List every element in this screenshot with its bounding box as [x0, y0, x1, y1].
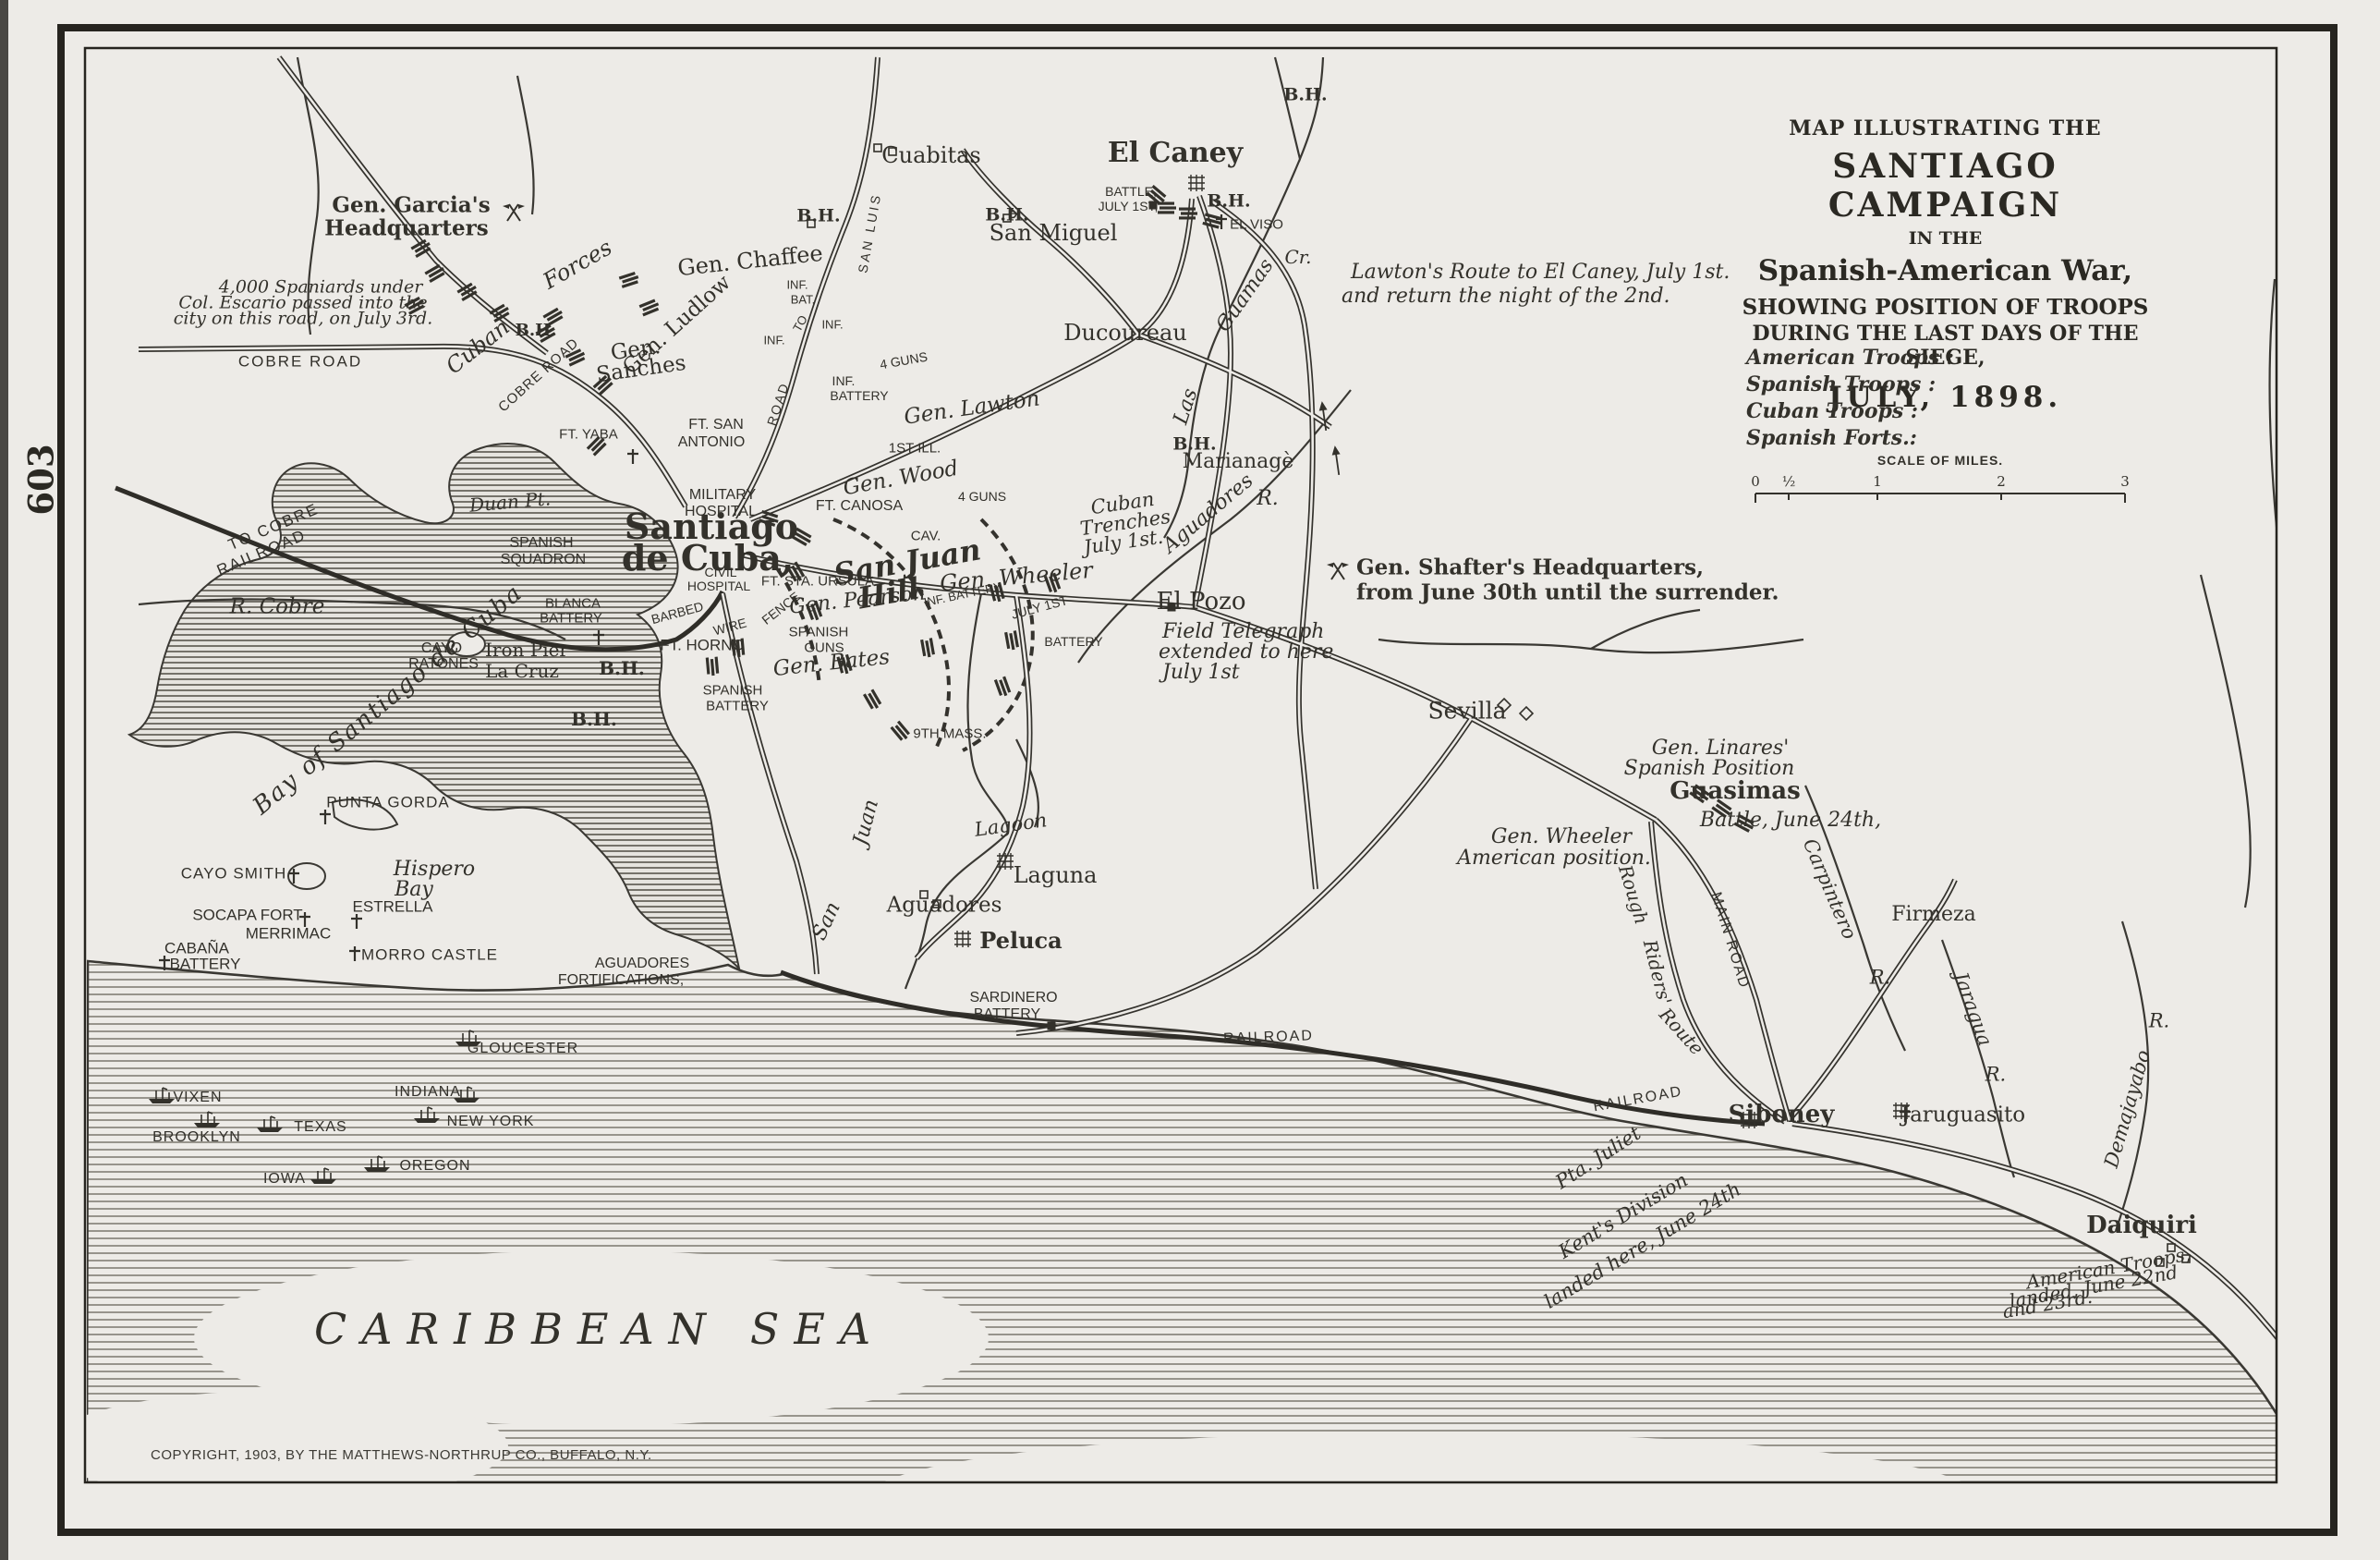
- map-label: FT. HORNO: [660, 638, 745, 653]
- map-label: INDIANA: [395, 1085, 461, 1100]
- map-label: Route: [1657, 1005, 1707, 1058]
- map-label: BATTERY: [974, 1007, 1040, 1022]
- map-label: INF.: [832, 374, 856, 387]
- map-label: Gen. Chaffee: [676, 242, 823, 279]
- map-label: Gen. Bates: [772, 647, 891, 680]
- map-label: BATTERY: [1044, 635, 1102, 648]
- map-label: R. Cobre: [230, 597, 325, 618]
- map-label: 4 GUNS: [879, 350, 929, 372]
- map-label: FT. CANOSA: [816, 499, 903, 514]
- scale-bar: 0½123: [1746, 468, 2134, 508]
- map-label: Sanches: [595, 353, 687, 386]
- scale-tick-label: 2: [1997, 473, 2006, 490]
- map-label: Aguadores: [1160, 470, 1257, 557]
- map-label: MILITARY: [689, 488, 756, 503]
- map-label: Rough: [1616, 863, 1651, 927]
- map-label: city on this road, on July 3rd.: [174, 311, 432, 328]
- map-label: Guasimas: [1670, 779, 1800, 803]
- map-label: extended to here: [1159, 642, 1333, 663]
- map-label: CAV.: [911, 530, 941, 543]
- legend-item: Spanish Forts.:: [1746, 424, 2143, 451]
- map-label: BARBED: [650, 600, 704, 626]
- map-label: Battle, June 24th,: [1700, 810, 1881, 831]
- map-label: El Caney: [1108, 140, 1243, 167]
- map-label: Lawton's Route to El Caney, July 1st.: [1351, 262, 1730, 283]
- map-label: INF.: [763, 335, 784, 347]
- map-label: Gen. Garcia's: [332, 195, 490, 216]
- map-label: BLANCA: [545, 597, 601, 611]
- map-label: from June 30th until the surrender.: [1356, 582, 1779, 603]
- map-label: Field Telegraph: [1162, 622, 1324, 642]
- map-label: CARIBBEAN: [314, 1308, 721, 1350]
- scale-tick-label: ½: [1782, 473, 1796, 490]
- map-label: EL VISO: [1230, 218, 1283, 232]
- map-label: SAN LUIS: [856, 192, 882, 274]
- map-label: BATTERY: [170, 957, 241, 972]
- title-line: IN THE: [1726, 228, 2165, 249]
- map-label: BATTERY: [540, 612, 602, 626]
- map-label: Aguadores: [887, 896, 1002, 917]
- map-label: R.: [1985, 1066, 2007, 1085]
- map-label: Riders': [1641, 938, 1675, 1006]
- map-label: San: [809, 899, 844, 944]
- map-label: ROAD: [765, 381, 791, 427]
- map-label: JULY 1ST,: [1099, 200, 1159, 213]
- map-label: B.H.: [1207, 193, 1250, 211]
- map-label: OREGON: [399, 1159, 470, 1174]
- map-label: R.: [1257, 489, 1279, 509]
- legend-item-label: Cuban Troops :: [1746, 399, 1918, 423]
- map-label: Demajayabo: [2102, 1048, 2154, 1170]
- map-label: Laguna: [1014, 864, 1098, 886]
- map-label: Jaruguasito: [1901, 1105, 2025, 1127]
- map-label: Cuabitas: [881, 144, 980, 166]
- map-label: CABAÑA: [164, 941, 229, 957]
- map-label: JULY 1ST: [1010, 593, 1069, 621]
- map-label: SQUADRON: [501, 553, 586, 567]
- map-label: COBRE ROAD: [496, 335, 581, 414]
- scale-title: SCALE OF MILES.: [1746, 453, 2134, 468]
- map-label: Headquarters: [324, 218, 489, 239]
- map-label: Spanish Position: [1624, 759, 1795, 779]
- map-label: Siboney: [1729, 1103, 1835, 1127]
- map-label: Lagoon: [974, 810, 1049, 840]
- map-label: VIXEN: [173, 1091, 222, 1105]
- map-label: Iron Pier: [485, 640, 568, 659]
- map-label: TO: [791, 313, 809, 334]
- map-label: Las: [1172, 386, 1202, 427]
- copyright-line: COPYRIGHT, 1903, BY THE MATTHEWS-NORTHRU…: [151, 1447, 652, 1463]
- scale-tick-label: 3: [2120, 473, 2130, 490]
- map-label: B.H.: [571, 710, 617, 728]
- map-scan-page: Gen. Garcia'sHeadquarters4,000 Spaniards…: [0, 0, 2380, 1560]
- legend-items: American Troops :Spanish Troops :Cuban T…: [1746, 344, 2143, 451]
- legend: American Troops :Spanish Troops :Cuban T…: [1746, 344, 2143, 451]
- map-label: Carpintero: [1800, 836, 1860, 943]
- map-label: FT. YABA: [559, 428, 618, 442]
- map-label: PUNTA GORDA: [326, 795, 449, 810]
- map-label: Gen. Lawton: [903, 388, 1041, 428]
- map-label: BATTERY: [830, 389, 888, 402]
- scale-of-miles: SCALE OF MILES. 0½123: [1746, 453, 2134, 512]
- map-label: 9TH MASS.: [913, 727, 986, 741]
- map-label: BROOKLYN: [152, 1130, 241, 1145]
- map-label: INF.: [786, 279, 807, 291]
- map-label: BATTLE,: [1105, 185, 1157, 198]
- map-label: AGUADORES: [595, 957, 689, 971]
- map-label: MAIN ROAD: [1707, 891, 1751, 992]
- map-label: ANTONIO: [678, 435, 746, 450]
- map-label: Jaragua: [1950, 969, 1995, 1048]
- map-label: WIRE: [712, 616, 748, 638]
- map-title: SANTIAGO CAMPAIGN: [1726, 147, 2165, 225]
- map-label: Hispero: [394, 859, 475, 880]
- map-label: SPANISH: [509, 536, 573, 551]
- legend-item-label: American Troops :: [1746, 346, 1954, 370]
- legend-item: Spanish Troops :: [1746, 371, 2143, 397]
- map-label: Gen. Linares': [1652, 738, 1790, 759]
- map-label: COBRE ROAD: [238, 354, 362, 370]
- map-label: SPANISH: [703, 684, 763, 698]
- map-label: B.H.: [796, 208, 840, 225]
- map-label: Pta. Juliet: [1552, 1124, 1644, 1193]
- map-label: FT. SAN: [688, 418, 744, 433]
- map-label: R.: [1870, 969, 1891, 988]
- map-label: Cuban: [443, 315, 514, 378]
- map-label: TEXAS: [294, 1120, 346, 1135]
- map-label: ESTRELLA: [353, 899, 433, 915]
- map-label: CAYO SMITH: [181, 866, 287, 882]
- map-label: SEA: [750, 1308, 885, 1350]
- page-number: 603: [21, 444, 62, 515]
- legend-item: American Troops :: [1746, 344, 2143, 371]
- map-label: HOSPITAL: [687, 579, 750, 592]
- map-label: 1ST ILL.: [889, 442, 941, 456]
- map-label: SOCAPA FORT: [192, 908, 302, 923]
- map-label: MERRIMAC: [246, 926, 332, 942]
- map-label: Hill: [856, 573, 921, 613]
- map-label: July 1st: [1162, 663, 1240, 683]
- map-label: Firmeza: [1891, 905, 1975, 925]
- map-label: Gen. Shafter's Headquarters,: [1356, 557, 1704, 579]
- map-label: SPANISH: [789, 626, 849, 640]
- map-label: FORTIFICATIONS,: [558, 973, 684, 988]
- map-label: RAILROAD: [1223, 1029, 1314, 1046]
- legend-item: Cuban Troops :: [1746, 397, 2143, 424]
- map-label: BAT.: [791, 294, 816, 306]
- map-label: and return the night of the 2nd.: [1342, 286, 1670, 307]
- legend-item-label: Spanish Troops :: [1746, 372, 1936, 396]
- map-label: CIVIL: [704, 566, 736, 579]
- map-label: MORRO CASTLE: [361, 947, 498, 963]
- scale-tick-label: 1: [1873, 473, 1882, 490]
- map-label: BATTERY: [706, 700, 769, 713]
- map-label: Juan: [851, 798, 882, 847]
- map-label: Guamas: [1213, 256, 1278, 335]
- title-line: SHOWING POSITION OF TROOPS: [1726, 295, 2165, 320]
- map-label: IOWA: [263, 1172, 306, 1187]
- map-label: Gen. Wood: [842, 458, 960, 500]
- map-label: INF.: [821, 319, 843, 331]
- map-label: Forces: [540, 236, 615, 292]
- map-label: Sevilla: [1428, 700, 1507, 723]
- map-label: Ducoureau: [1063, 322, 1187, 344]
- title-line: Spanish-American War,: [1726, 254, 2165, 287]
- map-label: El Pozo: [1156, 590, 1245, 614]
- map-label: Marianagè: [1183, 452, 1294, 472]
- map-label: La Cruz: [485, 662, 559, 680]
- title-line: MAP ILLUSTRATING THE: [1726, 116, 2165, 140]
- scale-tick-label: 0: [1751, 473, 1760, 490]
- map-label: NEW YORK: [447, 1115, 535, 1129]
- map-label: Gen. Wheeler: [1491, 827, 1632, 847]
- map-label: 4 GUNS: [958, 490, 1006, 503]
- map-label: R.: [2149, 1012, 2170, 1031]
- map-label: B.H.: [599, 659, 645, 677]
- map-label: Peluca: [979, 930, 1062, 952]
- legend-item-label: Spanish Forts.:: [1746, 426, 1917, 450]
- map-label: Cr.: [1284, 248, 1311, 266]
- map-label: San Miguel: [990, 222, 1118, 244]
- map-label: Duan Pt.: [468, 489, 551, 515]
- map-label: B.H.: [1283, 87, 1327, 104]
- map-label: GLOUCESTER: [467, 1042, 578, 1056]
- map-label: B.H.: [516, 323, 557, 339]
- map-label: Daiquiri: [2086, 1213, 2197, 1237]
- map-label: SARDINERO: [969, 991, 1057, 1005]
- map-label: RAILROAD: [1592, 1085, 1683, 1115]
